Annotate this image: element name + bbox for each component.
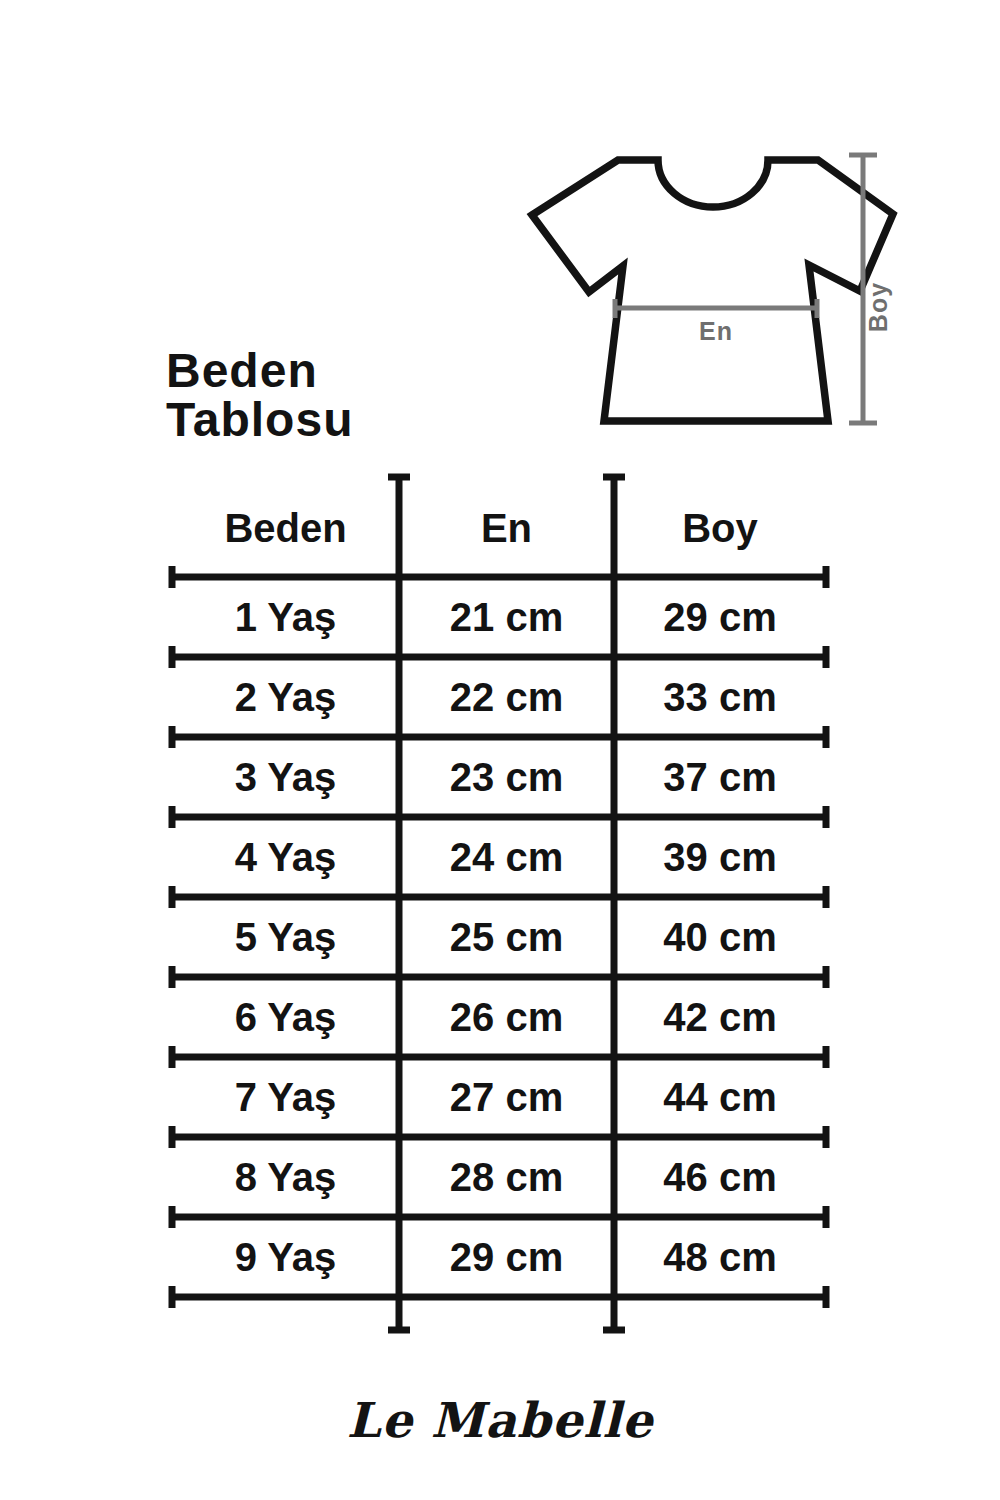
column-header-en: En bbox=[399, 505, 614, 551]
size-chart-page: En Boy Beden Tablosu Beden En Boy 1 Yaş … bbox=[0, 0, 1000, 1500]
column-header-boy: Boy bbox=[614, 505, 826, 551]
size-cell: 2 Yaş bbox=[172, 657, 399, 737]
width-cell: 22 cm bbox=[399, 657, 614, 737]
width-cell: 21 cm bbox=[399, 577, 614, 657]
size-cell: 4 Yaş bbox=[172, 817, 399, 897]
table-row: 3 Yaş 23 cm 37 cm bbox=[0, 737, 1000, 817]
table-row: 8 Yaş 28 cm 46 cm bbox=[0, 1137, 1000, 1217]
width-cell: 23 cm bbox=[399, 737, 614, 817]
height-cell: 37 cm bbox=[614, 737, 826, 817]
size-cell: 3 Yaş bbox=[172, 737, 399, 817]
table-row: 7 Yaş 27 cm 44 cm bbox=[0, 1057, 1000, 1137]
size-cell: 6 Yaş bbox=[172, 977, 399, 1057]
size-cell: 1 Yaş bbox=[172, 577, 399, 657]
width-cell: 27 cm bbox=[399, 1057, 614, 1137]
height-cell: 44 cm bbox=[614, 1057, 826, 1137]
height-cell: 33 cm bbox=[614, 657, 826, 737]
size-cell: 9 Yaş bbox=[172, 1217, 399, 1297]
brand-logo: Le Mabelle bbox=[0, 1392, 1000, 1448]
table-row: 6 Yaş 26 cm 42 cm bbox=[0, 977, 1000, 1057]
size-cell: 7 Yaş bbox=[172, 1057, 399, 1137]
width-cell: 25 cm bbox=[399, 897, 614, 977]
width-cell: 29 cm bbox=[399, 1217, 614, 1297]
height-cell: 42 cm bbox=[614, 977, 826, 1057]
height-cell: 39 cm bbox=[614, 817, 826, 897]
height-cell: 46 cm bbox=[614, 1137, 826, 1217]
table-row: 4 Yaş 24 cm 39 cm bbox=[0, 817, 1000, 897]
height-cell: 48 cm bbox=[614, 1217, 826, 1297]
table-row: 9 Yaş 29 cm 48 cm bbox=[0, 1217, 1000, 1297]
width-cell: 26 cm bbox=[399, 977, 614, 1057]
table-row: 2 Yaş 22 cm 33 cm bbox=[0, 657, 1000, 737]
size-cell: 5 Yaş bbox=[172, 897, 399, 977]
height-cell: 40 cm bbox=[614, 897, 826, 977]
table-row: 1 Yaş 21 cm 29 cm bbox=[0, 577, 1000, 657]
table-row: 5 Yaş 25 cm 40 cm bbox=[0, 897, 1000, 977]
size-cell: 8 Yaş bbox=[172, 1137, 399, 1217]
width-cell: 24 cm bbox=[399, 817, 614, 897]
width-cell: 28 cm bbox=[399, 1137, 614, 1217]
column-header-beden: Beden bbox=[172, 505, 399, 551]
height-cell: 29 cm bbox=[614, 577, 826, 657]
